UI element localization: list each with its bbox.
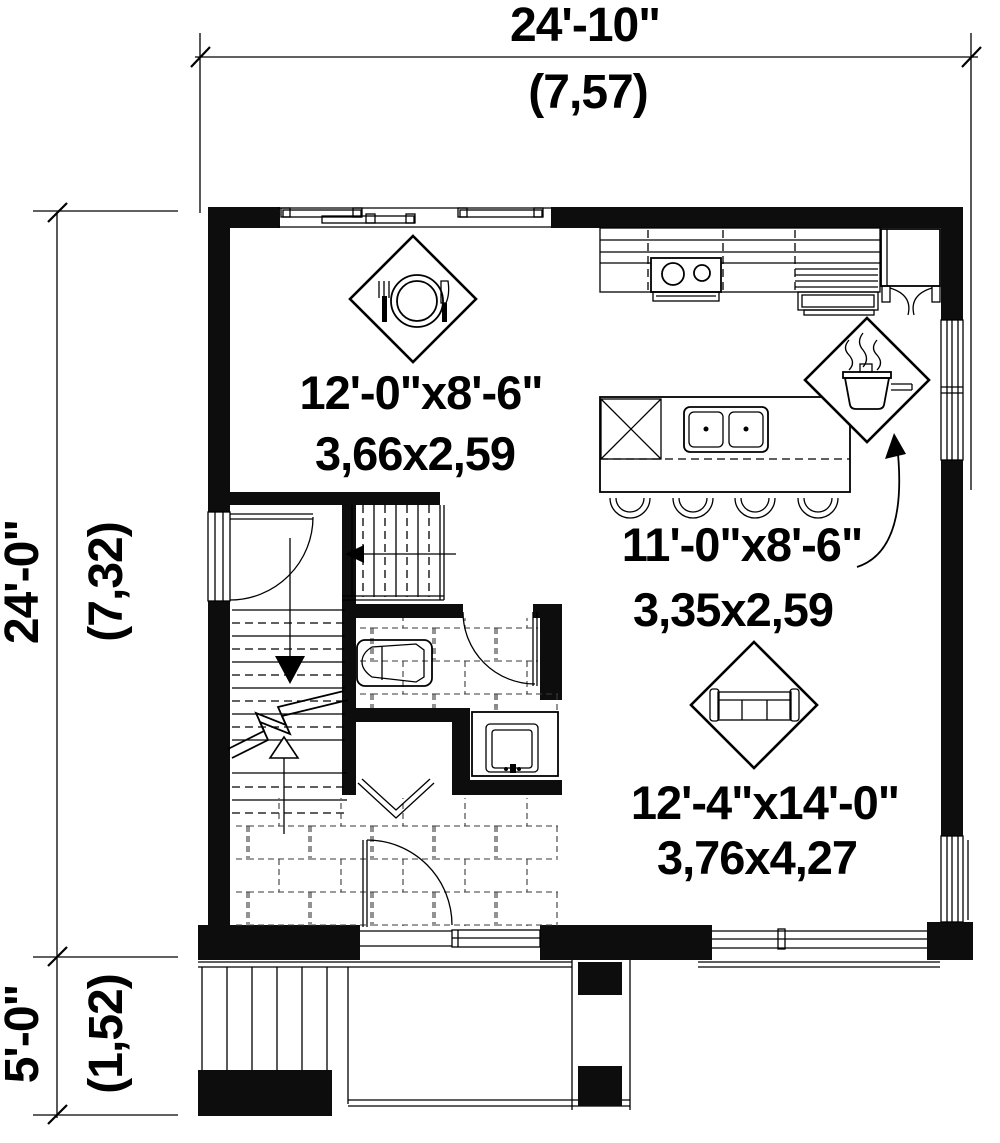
kitchen-size-metric: 3,35x2,59 <box>633 583 833 636</box>
left-window <box>208 512 230 601</box>
porch-dimension-imperial: 5'-0" <box>0 985 49 1084</box>
kitchen-size-imperial: 11'-0"x8'-6" <box>622 518 862 571</box>
width-dimension-metric: (7,57) <box>528 66 647 119</box>
rear-window <box>712 929 927 949</box>
dining-room-size-metric: 3,66x2,59 <box>315 427 515 480</box>
closet-door <box>230 514 313 600</box>
bathroom-tile-floor <box>470 690 558 712</box>
width-dimension-imperial: 24'-10" <box>510 0 660 52</box>
stair-direction-arrow-down <box>275 656 305 684</box>
kitchen-counter <box>600 228 880 315</box>
living-room-size-metric: 3,76x4,27 <box>657 831 857 884</box>
kitchen-reference-arrow <box>857 433 906 567</box>
front-porch <box>198 960 940 1116</box>
floor-plan-canvas: 24'-10" (7,57) 24'-0" (7,32) 5'-0" (1,52… <box>0 0 1000 1143</box>
double-swing-door <box>882 286 940 315</box>
island-double-sink <box>684 407 768 452</box>
kitchen-island <box>600 397 850 492</box>
porch-side-wall <box>198 1070 332 1116</box>
stairs-down <box>232 538 347 834</box>
dining-room-size-imperial: 12'-0"x8'-6" <box>299 366 542 419</box>
porch-post <box>578 1066 622 1106</box>
depth-dimension-imperial: 24'-0" <box>0 520 49 644</box>
porch-dimension-metric: (1,52) <box>80 974 133 1093</box>
living-side-window <box>941 836 968 922</box>
kitchen-side-window <box>941 320 963 460</box>
dining-room-marker <box>350 236 476 362</box>
depth-dimension-metric: (7,32) <box>80 522 133 641</box>
vanity-sink <box>472 712 558 776</box>
front-window <box>278 208 551 227</box>
living-room-size-imperial: 12'-4"x14'-0" <box>631 776 899 829</box>
refrigerator <box>881 229 940 286</box>
bar-stools <box>610 498 838 518</box>
living-room-marker <box>691 642 817 768</box>
porch-post <box>578 962 622 995</box>
stairs-up <box>342 505 456 600</box>
floor-plan-page: 24'-10" (7,57) 24'-0" (7,32) 5'-0" (1,52… <box>0 0 1000 1143</box>
porch-dimension: 5'-0" (1,52) <box>0 974 133 1093</box>
stove-cooktop <box>651 258 721 301</box>
kitchen-marker <box>805 318 929 442</box>
